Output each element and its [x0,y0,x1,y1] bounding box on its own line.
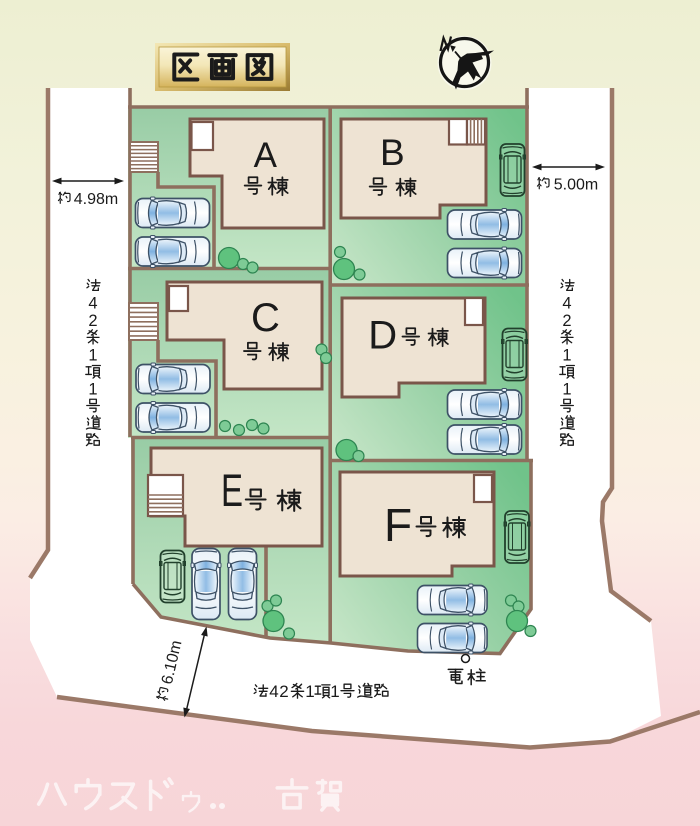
svg-text:2: 2 [562,312,571,330]
svg-text:2: 2 [88,312,97,330]
svg-text:2: 2 [279,682,288,701]
svg-text:4.98m: 4.98m [74,191,118,208]
svg-text:5.00m: 5.00m [554,177,598,194]
svg-text:1: 1 [88,346,97,364]
svg-text:4: 4 [88,295,97,313]
svg-text:B: B [380,132,405,173]
svg-text:F: F [384,499,412,551]
svg-text:4: 4 [562,295,571,313]
svg-text:E: E [221,465,243,516]
svg-text:1: 1 [88,381,97,399]
svg-text:D: D [368,314,397,358]
svg-text:1: 1 [305,682,314,701]
svg-text:1: 1 [562,381,571,399]
svg-text:4: 4 [269,682,278,701]
svg-text:1: 1 [562,346,571,364]
svg-text:C: C [251,296,280,340]
svg-text:1: 1 [330,682,339,701]
svg-text:A: A [254,136,278,175]
